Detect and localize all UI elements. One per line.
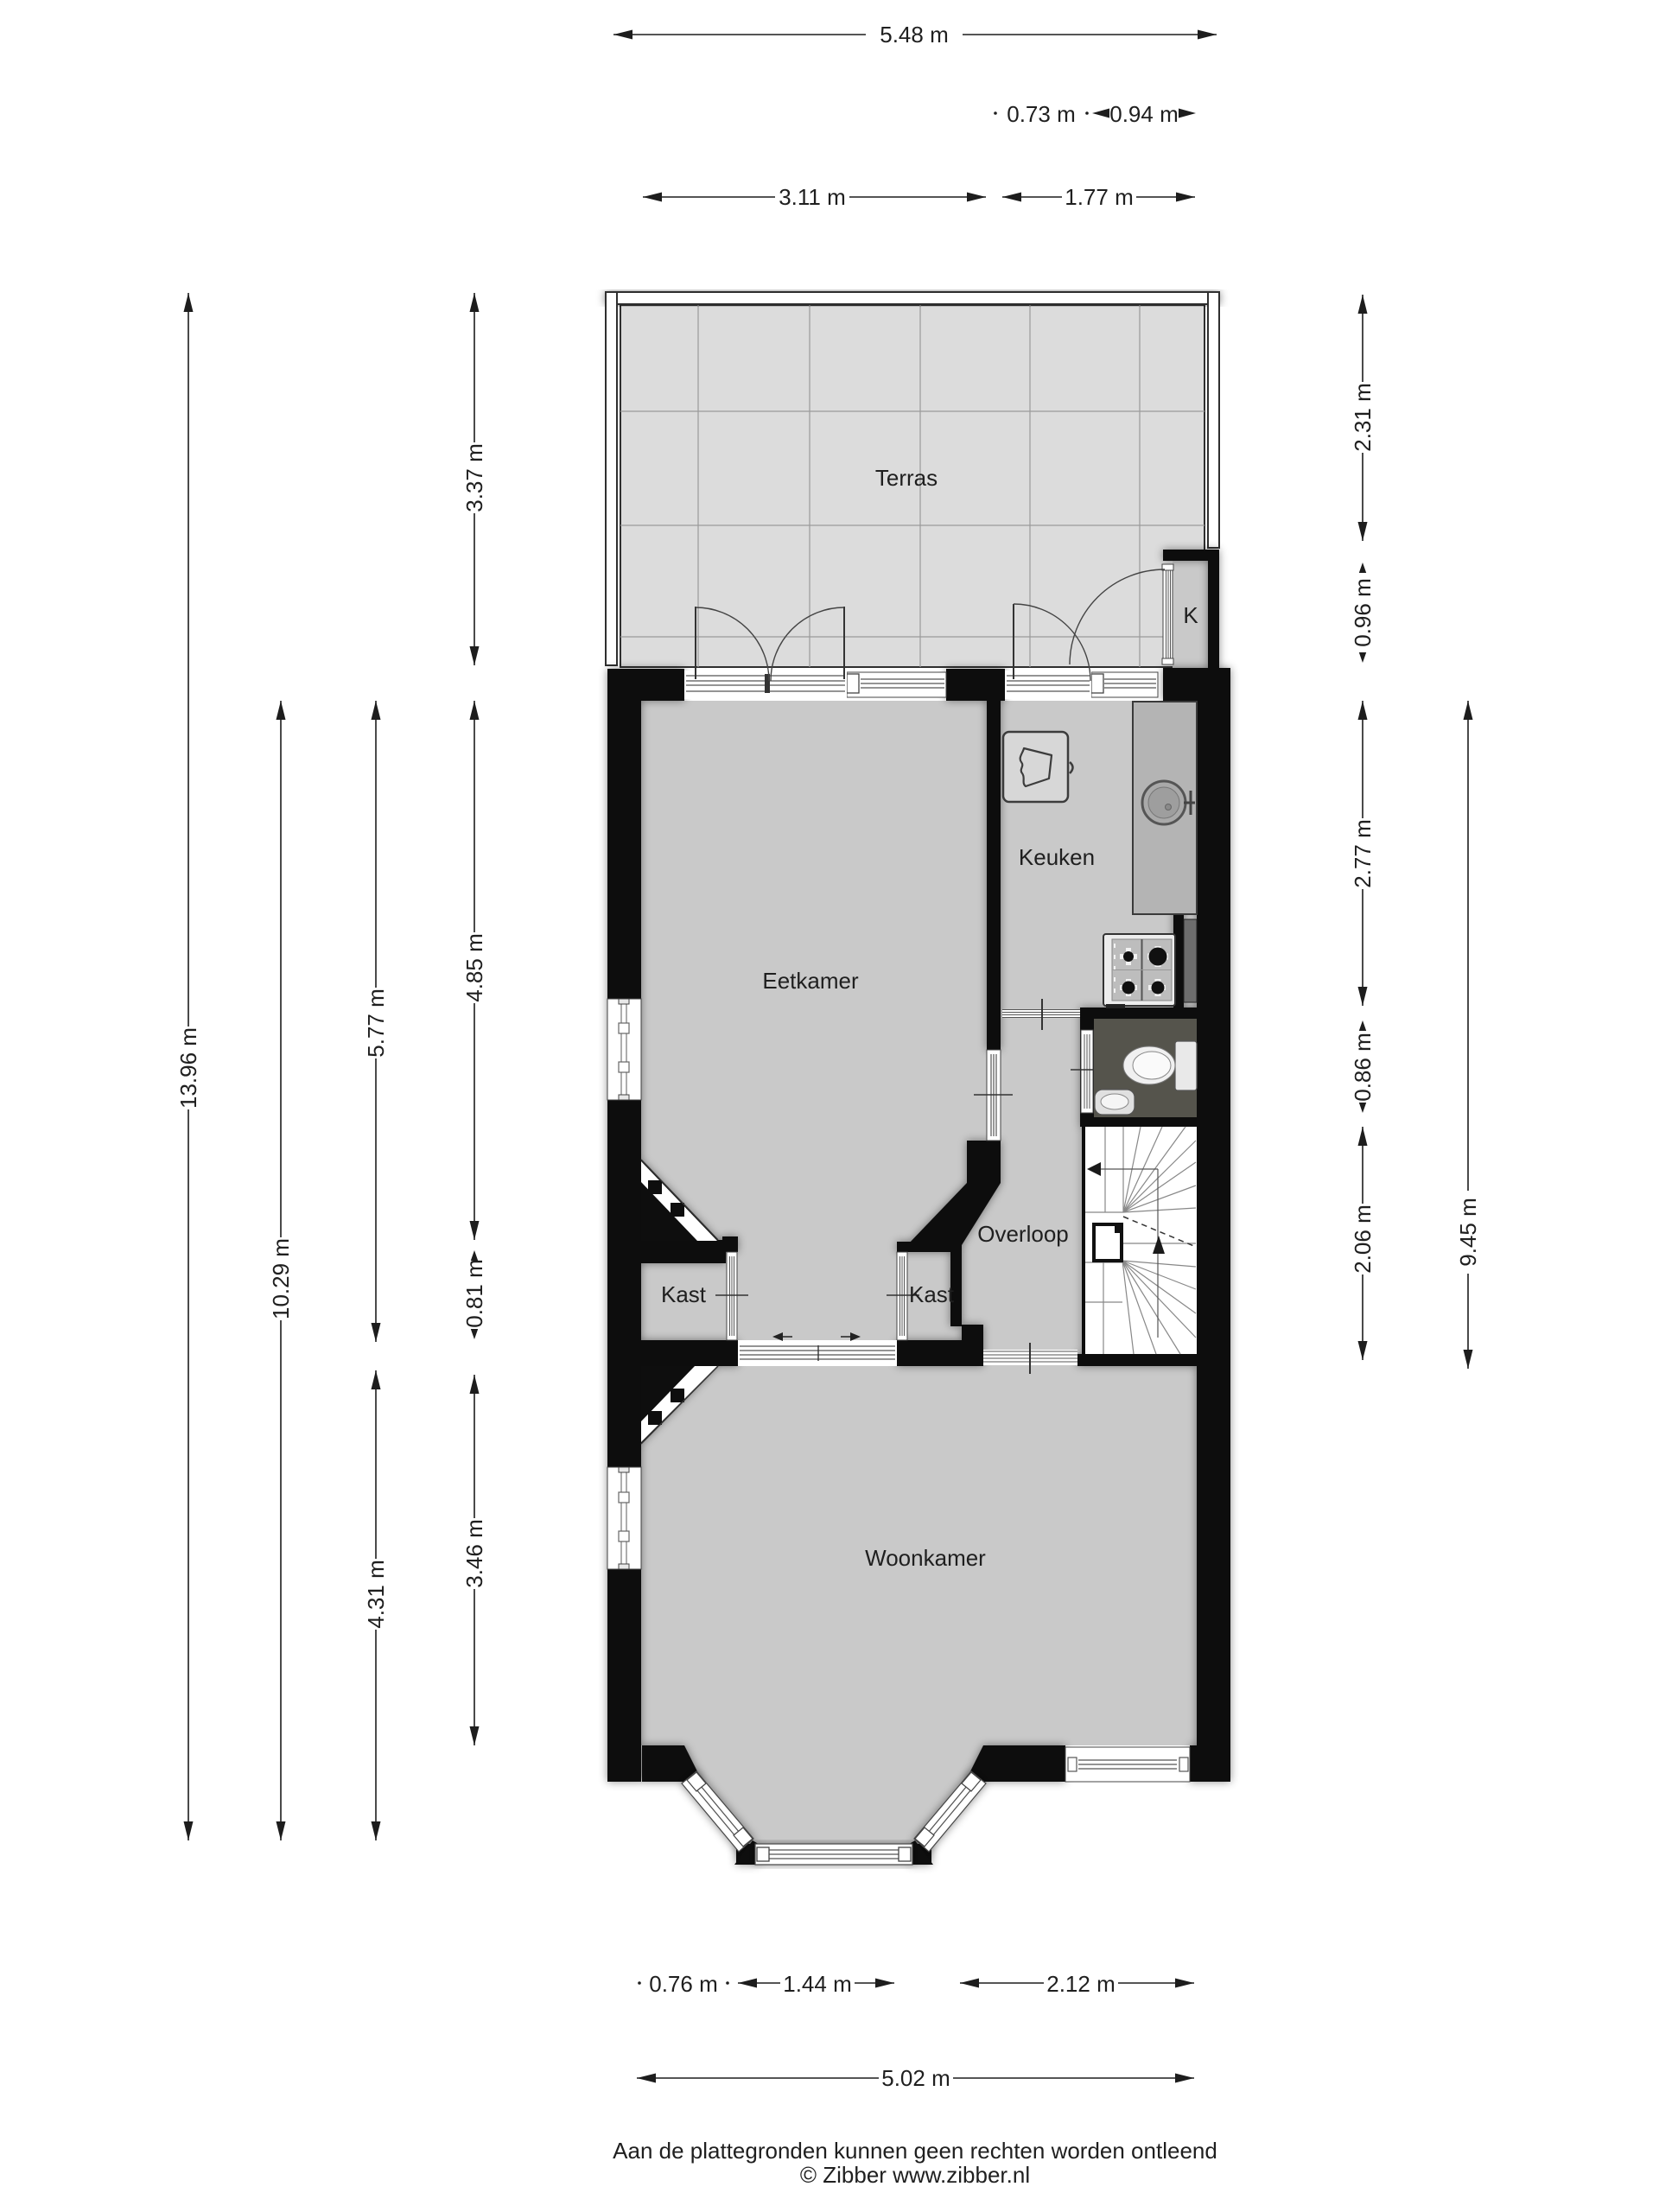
svg-text:Kast: Kast bbox=[909, 1281, 955, 1307]
svg-text:2.06 m: 2.06 m bbox=[1350, 1205, 1376, 1274]
svg-text:0.94 m: 0.94 m bbox=[1109, 101, 1179, 127]
svg-text:0.76 m: 0.76 m bbox=[649, 1971, 718, 1997]
svg-text:3.11 m: 3.11 m bbox=[779, 184, 846, 210]
svg-text:2.31 m: 2.31 m bbox=[1350, 383, 1376, 452]
svg-text:Woonkamer: Woonkamer bbox=[865, 1545, 986, 1571]
svg-text:K: K bbox=[1183, 602, 1198, 628]
svg-text:9.45 m: 9.45 m bbox=[1455, 1198, 1481, 1267]
svg-text:5.77 m: 5.77 m bbox=[363, 988, 389, 1058]
svg-text:13.96 m: 13.96 m bbox=[175, 1027, 201, 1109]
svg-text:5.02 m: 5.02 m bbox=[881, 2065, 950, 2091]
svg-text:Keuken: Keuken bbox=[1019, 844, 1095, 870]
svg-text:1.44 m: 1.44 m bbox=[783, 1971, 852, 1997]
svg-text:0.81 m: 0.81 m bbox=[461, 1259, 487, 1328]
svg-text:4.31 m: 4.31 m bbox=[363, 1560, 389, 1629]
svg-text:Eetkamer: Eetkamer bbox=[762, 968, 859, 994]
svg-text:3.46 m: 3.46 m bbox=[461, 1519, 487, 1588]
svg-text:2.12 m: 2.12 m bbox=[1046, 1971, 1116, 1997]
svg-text:2.77 m: 2.77 m bbox=[1350, 819, 1376, 888]
svg-text:0.73 m: 0.73 m bbox=[1007, 101, 1076, 127]
svg-text:0.86 m: 0.86 m bbox=[1350, 1033, 1376, 1102]
svg-text:0.96 m: 0.96 m bbox=[1350, 578, 1376, 647]
svg-text:Terras: Terras bbox=[875, 465, 938, 491]
svg-text:10.29 m: 10.29 m bbox=[268, 1238, 294, 1319]
svg-text:4.85 m: 4.85 m bbox=[461, 933, 487, 1002]
svg-text:1.77 m: 1.77 m bbox=[1065, 184, 1134, 210]
svg-text:5.48 m: 5.48 m bbox=[880, 22, 949, 48]
svg-text:© Zibber www.zibber.nl: © Zibber www.zibber.nl bbox=[800, 2162, 1030, 2188]
svg-text:Kast: Kast bbox=[661, 1281, 707, 1307]
svg-text:Overloop: Overloop bbox=[977, 1221, 1069, 1247]
svg-text:Aan de plattegronden kunnen ge: Aan de plattegronden kunnen geen rechten… bbox=[613, 2138, 1217, 2164]
svg-text:3.37 m: 3.37 m bbox=[461, 443, 487, 512]
